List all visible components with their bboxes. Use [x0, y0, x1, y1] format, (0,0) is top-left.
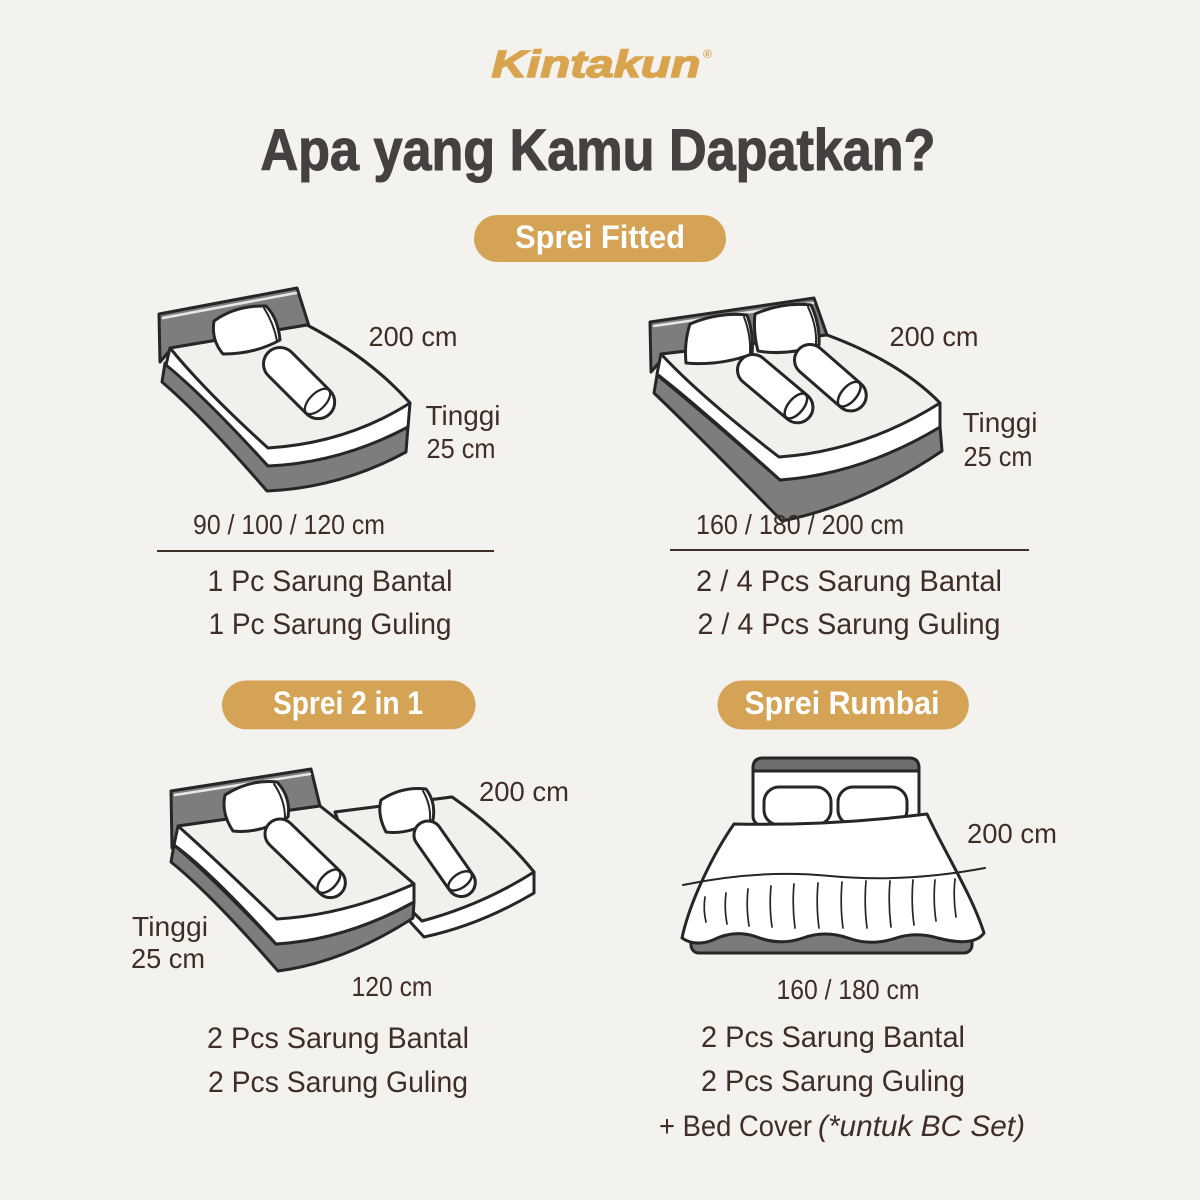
- svg-text:160 / 180 / 200 cm: 160 / 180 / 200 cm: [696, 509, 904, 540]
- svg-text:®: ®: [703, 47, 712, 61]
- svg-text:Apa yang Kamu Dapatkan?: Apa yang Kamu Dapatkan?: [261, 118, 936, 183]
- svg-text:90 / 100 / 120 cm: 90 / 100 / 120 cm: [193, 509, 385, 540]
- svg-text:160 / 180 cm: 160 / 180 cm: [777, 974, 920, 1005]
- svg-text:200 cm: 200 cm: [890, 321, 979, 352]
- svg-text:1 Pc Sarung Guling: 1 Pc Sarung Guling: [209, 608, 452, 641]
- svg-text:Sprei Fitted: Sprei Fitted: [515, 219, 685, 255]
- svg-text:2 Pcs Sarung Guling: 2 Pcs Sarung Guling: [701, 1065, 965, 1098]
- svg-text:2 Pcs Sarung Bantal: 2 Pcs Sarung Bantal: [701, 1021, 965, 1054]
- svg-text:Tinggi: Tinggi: [963, 407, 1038, 438]
- svg-text:200 cm: 200 cm: [967, 818, 1057, 849]
- svg-text:2 / 4 Pcs Sarung Bantal: 2 / 4 Pcs Sarung Bantal: [696, 565, 1002, 598]
- svg-text:Kintakun: Kintakun: [492, 44, 701, 86]
- svg-text:2 / 4 Pcs Sarung Guling: 2 / 4 Pcs Sarung Guling: [698, 608, 1001, 641]
- svg-text:Sprei 2 in 1: Sprei 2 in 1: [273, 685, 423, 721]
- svg-text:2 Pcs Sarung Bantal: 2 Pcs Sarung Bantal: [207, 1022, 469, 1055]
- svg-text:200 cm: 200 cm: [369, 321, 458, 352]
- svg-text:(*untuk BC Set): (*untuk BC Set): [818, 1110, 1025, 1143]
- svg-text:1 Pc Sarung Bantal: 1 Pc Sarung Bantal: [208, 565, 453, 598]
- svg-text:120 cm: 120 cm: [352, 971, 433, 1002]
- svg-text:2 Pcs Sarung Guling: 2 Pcs Sarung Guling: [208, 1066, 468, 1099]
- svg-text:25 cm: 25 cm: [964, 441, 1033, 472]
- svg-text:Tinggi: Tinggi: [426, 400, 501, 431]
- svg-text:25 cm: 25 cm: [427, 433, 496, 464]
- svg-text:25 cm: 25 cm: [131, 943, 205, 974]
- svg-text:+ Bed Cover: + Bed Cover: [659, 1110, 812, 1143]
- svg-text:Sprei Rumbai: Sprei Rumbai: [745, 685, 940, 721]
- svg-text:200 cm: 200 cm: [479, 776, 569, 807]
- svg-text:Tinggi: Tinggi: [132, 911, 208, 942]
